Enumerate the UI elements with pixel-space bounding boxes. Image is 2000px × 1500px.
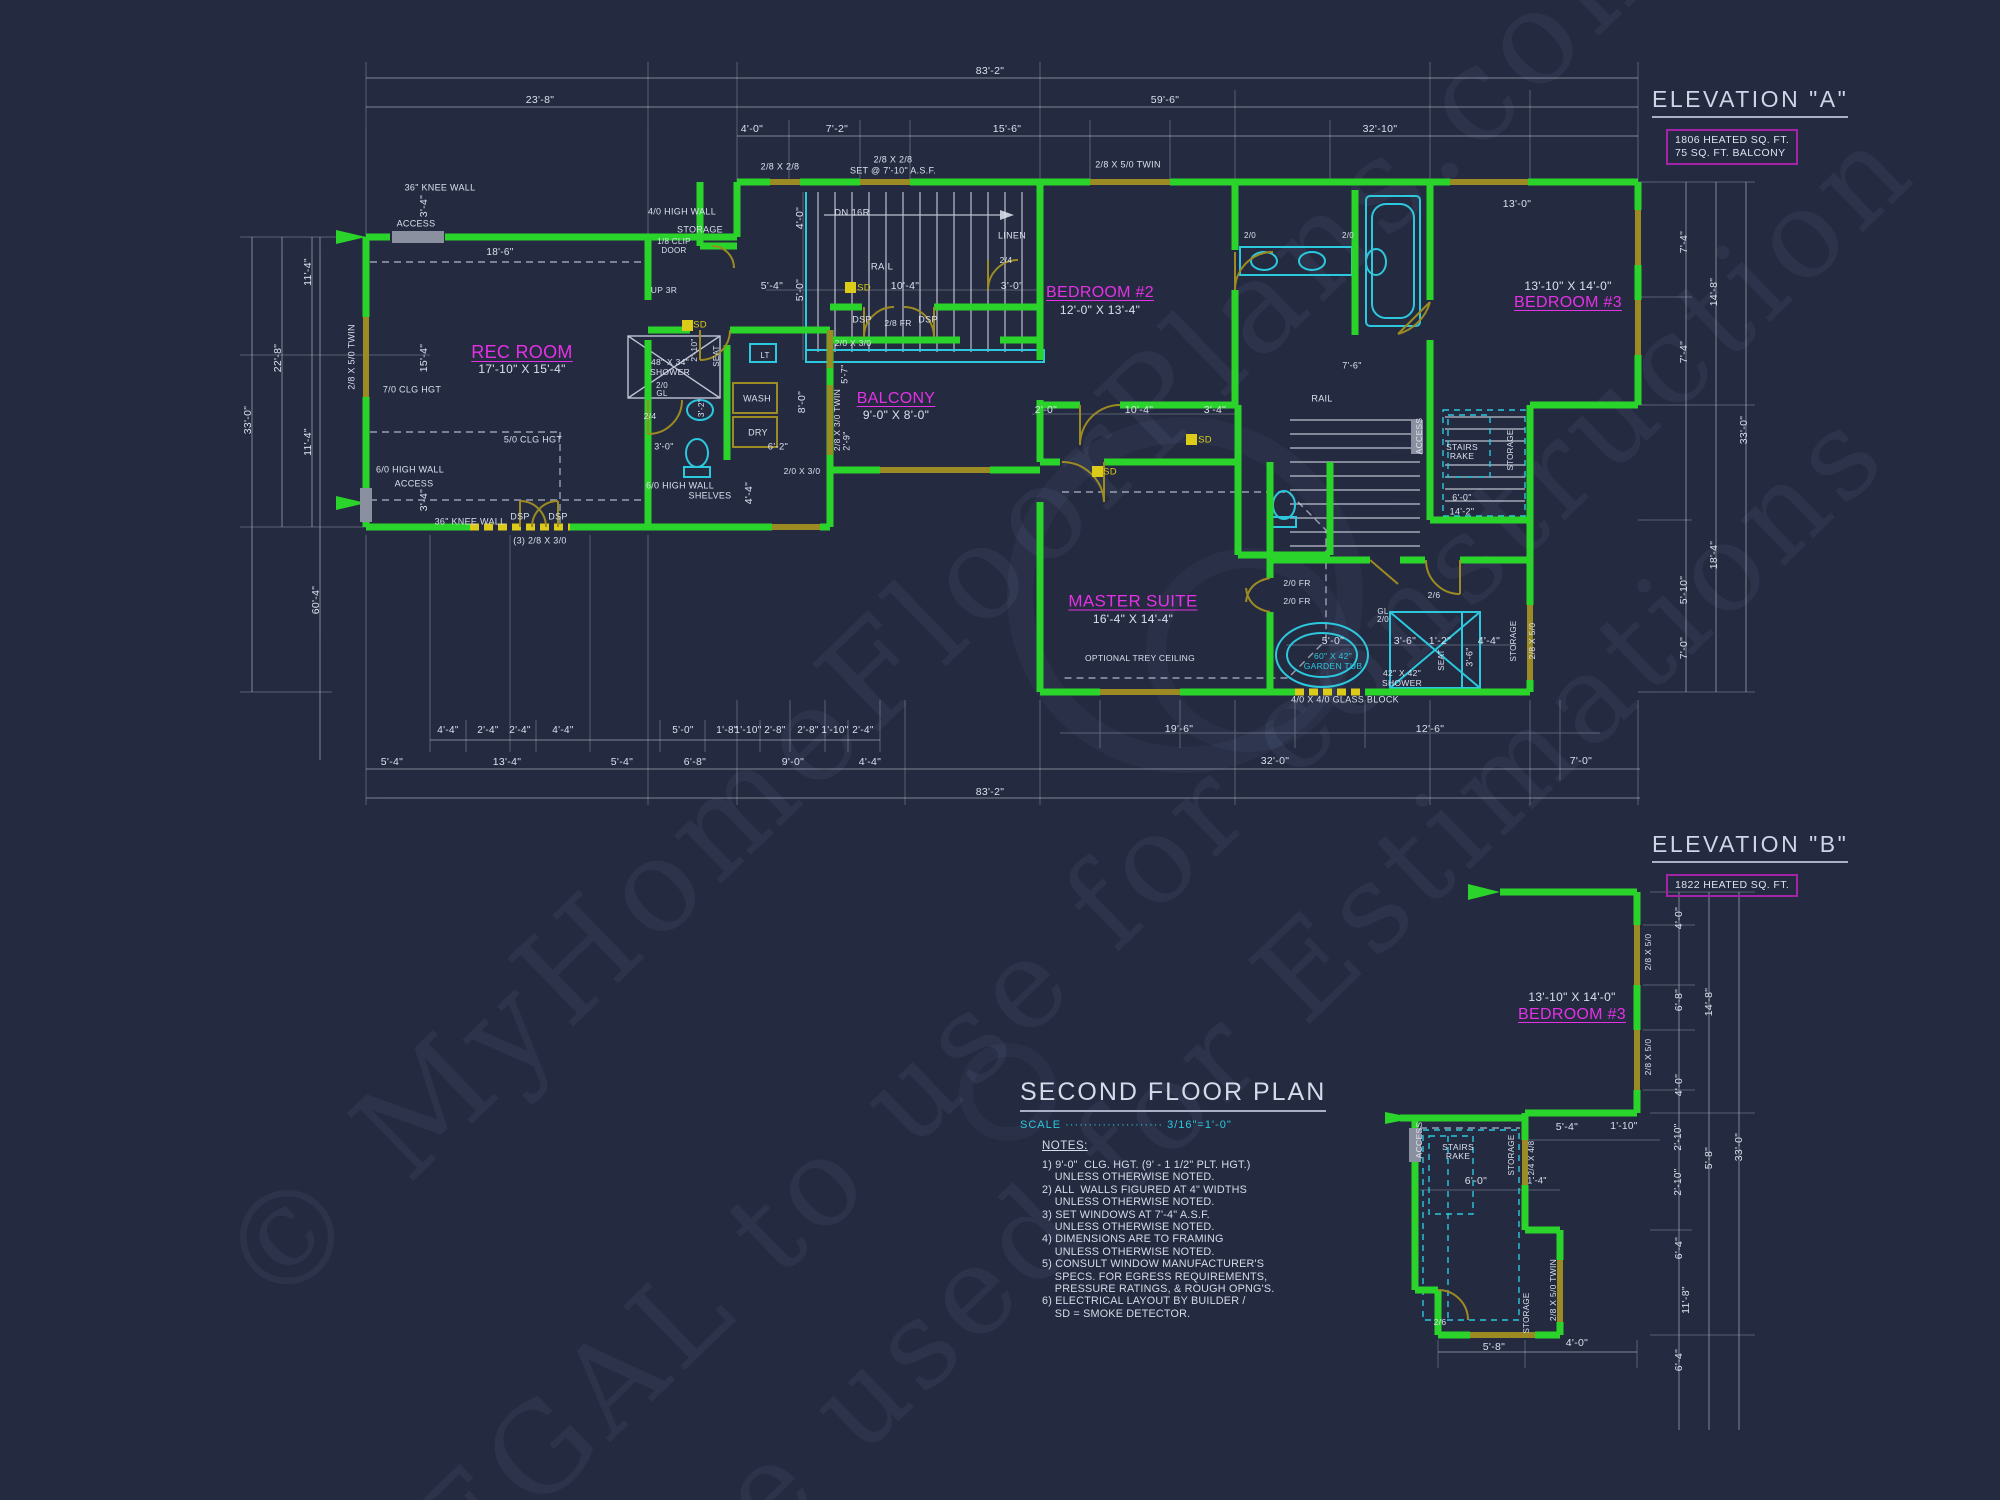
plan-label: 36" KNEE WALL [435,518,506,527]
room-label-bedroom-3: BEDROOM #3 [1514,295,1622,311]
plan-label: (3) 2/8 X 3/0 [513,537,566,546]
plan-label: 48" X 34" [651,358,689,367]
plan-label: 5'-8" [1483,1342,1505,1353]
plan-label: 14'-2" [1450,508,1475,517]
plan-label: 2/0 [1244,232,1256,240]
plan-label: 6'-2" [768,442,788,452]
plan-label: SEAT [1438,649,1446,671]
plan-label: 14'-8" [1704,988,1715,1017]
elevation-a-sqft-box: 1806 HEATED SQ. FT. 75 SQ. FT. BALCONY [1666,129,1798,165]
note-line: UNLESS OTHERWISE NOTED. [1042,1246,1274,1258]
plan-label: 6'-4" [1674,1237,1685,1259]
plan-label: 3'-0" [1001,281,1023,292]
plan-label: 18'-4" [1709,541,1720,570]
plan-label: SD [1198,435,1212,445]
plan-label: 2/0 FR [1283,579,1310,588]
plan-label: 17'-10" X 15'-4" [478,363,565,375]
blueprint-page: © MyHomeFloorPlans.com ILLEGAL to use fo… [0,0,2000,1500]
plan-label: 3'-6" [1466,647,1475,666]
plan-label: RAKE [1450,452,1474,461]
plan-label: SEAT [713,345,721,367]
plan-label: 2/4 [644,412,657,421]
plan-title-block: SECOND FLOOR PLAN SCALE ················… [1020,1078,1326,1131]
note-line: UNLESS OTHERWISE NOTED. [1042,1196,1274,1208]
plan-label: RAKE [1446,1152,1470,1161]
plan-label: 5'-4" [611,757,633,768]
plan-label: 32'-10" [1363,124,1398,135]
plan-label: 5'-0" [795,279,806,301]
plan-label: 3'-6" [1394,636,1416,647]
notes-block: NOTES: 1) 9'-0" CLG. HGT. (9' - 1 1/2" P… [1042,1140,1274,1320]
plan-label: 2/4 X 4/8 [1528,1141,1536,1176]
elevation-b-sqft-box: 1822 HEATED SQ. FT. [1666,874,1798,897]
plan-label: 4'-4" [859,757,881,768]
plan-title: SECOND FLOOR PLAN [1020,1078,1326,1112]
plan-label: SHOWER [1382,679,1422,688]
plan-label: 1'-10" [734,726,761,736]
plan-label: 33'-0" [243,406,254,435]
plan-label: 7'-4" [1679,341,1690,363]
plan-label: 5'-4" [1556,1122,1578,1133]
plan-label: ACCESS [397,220,436,229]
plan-label: 5'-0" [672,726,693,736]
plan-label: 14'-8" [1709,278,1720,307]
plan-label: 4'-4" [1478,636,1500,647]
plan-scale: SCALE ····················· 3/16"=1'-0" [1020,1119,1326,1131]
plan-label: 5'-4" [761,281,783,292]
plan-label: 60" X 42" [1314,652,1352,661]
plan-label: 7'-0" [1570,756,1592,767]
plan-label: 4'-4" [437,726,458,736]
plan-label: 4'-4" [552,726,573,736]
plan-label: 8'-0" [797,391,808,413]
plan-label: 2/8 X 5/0 [1528,623,1537,660]
note-line: 6) ELECTRICAL LAYOUT BY BUILDER / [1042,1295,1274,1307]
annotation-layer: 83'-2"23'-8"59'-6"4'-0"7'-2"15'-6"32'-10… [0,0,2000,1500]
plan-label: 11'-4" [303,428,314,456]
plan-label: 4/0 HIGH WALL [648,208,716,217]
plan-label: 2/0 FR [1283,597,1310,606]
plan-label: 2/8 X 5/0 [1644,934,1653,971]
plan-label: 11'-8" [1681,1286,1692,1314]
plan-label: 10'-4" [1125,405,1154,416]
plan-label: 4'-0" [795,207,806,229]
plan-label: 2'-8" [797,726,818,736]
note-line: PRESSURE RATINGS, & ROUGH OPNG'S. [1042,1283,1274,1295]
plan-label: ACCESS [395,480,434,489]
elevation-a-title: ELEVATION "A" [1652,86,1848,118]
plan-label: 7'-6" [1342,362,1361,371]
plan-label: 9'-0" [782,757,804,768]
plan-label: 5'-10" [1679,576,1690,605]
plan-label: 15'-4" [419,344,430,373]
plan-label: 2/0 X 3/0 [784,467,821,476]
plan-label: ACCESS [1415,1122,1424,1159]
notes-heading: NOTES: [1042,1140,1274,1152]
plan-label: DSP [510,513,529,522]
plan-label: 33'-0" [1734,1133,1745,1162]
plan-label: 16'-4" X 14'-4" [1093,613,1173,625]
note-line: 2) ALL WALLS FIGURED AT 4" WIDTHS [1042,1184,1274,1196]
elevation-a-heated-sqft: 1806 HEATED SQ. FT. [1675,134,1789,147]
plan-label: 2/4 [1000,256,1013,265]
plan-label: 6'-8" [1674,989,1685,1011]
plan-label: 13'-10" X 14'-0" [1528,991,1615,1003]
plan-label: 7'-4" [1679,231,1690,253]
plan-label: DN 16R [834,208,870,218]
plan-label: 5/0 CLG HGT [504,436,562,445]
plan-label: 5'-7" [841,364,850,383]
plan-label: 6'-0" [1465,1176,1487,1187]
plan-label: 13'-10" X 14'-0" [1524,280,1611,292]
note-line: UNLESS OTHERWISE NOTED. [1042,1171,1274,1183]
plan-label: 3'-2" [697,399,706,417]
plan-label: 4/0 X 4/0 GLASS BLOCK [1291,696,1399,705]
plan-label: 2/8 X 5/0 [1644,1039,1653,1076]
plan-label: 6/0 HIGH WALL [376,466,444,475]
plan-label: 6'-4" [1674,1349,1685,1371]
note-line: 4) DIMENSIONS ARE TO FRAMING [1042,1233,1274,1245]
note-line: UNLESS OTHERWISE NOTED. [1042,1221,1274,1233]
plan-label: 1'-4" [1527,1177,1546,1186]
plan-label: 2'-9" [843,431,852,450]
plan-label: DSP [918,316,937,325]
plan-label: 2/8 X 2/8 [761,163,800,172]
plan-label: 10'-4" [891,281,920,292]
plan-label: 4'-0" [1674,907,1685,929]
plan-label: 9'-0" X 8'-0" [863,409,929,421]
plan-label: 1'-10" [821,726,848,736]
plan-label: GARDEN TUB [1304,662,1363,671]
note-line: SPECS. FOR EGRESS REQUIREMENTS, [1042,1271,1274,1283]
note-line: 5) CONSULT WINDOW MANUFACTURER'S [1042,1258,1274,1270]
plan-label: 1/8 CLIP [657,238,691,246]
notes-list: 1) 9'-0" CLG. HGT. (9' - 1 1/2" PLT. HGT… [1042,1159,1274,1320]
plan-label: 1'-2" [1429,636,1451,647]
plan-label: 2/0 [1342,232,1354,240]
plan-label: 3'-4" [419,489,430,511]
plan-label: 2'-4" [477,726,498,736]
plan-label: GL [656,390,667,398]
plan-label: 6'-8" [684,757,706,768]
plan-label: LINEN [998,232,1026,241]
plan-label: 2'-10" [690,338,699,361]
plan-label: 83'-2" [976,66,1005,77]
plan-label: 2/8 X 5/0 TWIN [1095,161,1161,170]
plan-label: 2'-8" [764,726,785,736]
plan-label: 2/0 [1377,616,1389,624]
plan-label: LT [760,352,769,360]
plan-label: 6'-0" [1452,494,1471,503]
plan-label: 4'-0" [1674,1074,1685,1096]
plan-label: 5'-8" [1704,1147,1715,1169]
plan-label: 1'-10" [1610,1122,1637,1132]
plan-label: DSP [548,513,567,522]
plan-label: STORAGE [1523,1292,1531,1333]
plan-label: 3'-4" [1204,405,1226,416]
plan-label: 19'-6" [1165,724,1194,735]
plan-label: ACCESS [1415,418,1424,455]
plan-label: 83'-2" [976,787,1005,798]
plan-label: 2'-10" [1674,1168,1684,1195]
plan-label: 60'-4" [311,586,322,615]
plan-label: RAIL [1311,395,1332,404]
plan-label: 6/0 HIGH WALL [646,482,714,491]
plan-label: STORAGE [1507,429,1515,470]
plan-label: 2'-4" [852,726,873,736]
elevation-a-block: ELEVATION "A" 1806 HEATED SQ. FT. 75 SQ.… [1652,86,1848,165]
plan-label: 3'-0" [654,443,673,452]
plan-label: 12'-6" [1416,724,1445,735]
plan-label: 2/8 X 2/8 [874,156,913,165]
plan-label: 33'-0" [1739,416,1750,445]
plan-label: DSP [852,316,871,325]
plan-label: SHOWER [650,368,690,377]
room-label-balcony: BALCONY [857,391,936,407]
plan-label: STORAGE [1510,620,1518,661]
plan-label: OPTIONAL TREY CEILING [1085,654,1195,663]
note-line: 3) SET WINDOWS AT 7'-4" A.S.F. [1042,1209,1274,1221]
plan-label: 23'-8" [526,95,555,106]
plan-label: 2'-4" [509,726,530,736]
plan-label: SET @ 7'-10" A.S.F. [850,167,936,176]
plan-label: DRY [748,429,768,438]
plan-label: 2/8 X 5/0 TWIN [348,324,357,390]
note-line: SD = SMOKE DETECTOR. [1042,1308,1274,1320]
plan-label: 7'-2" [826,124,848,135]
plan-label: DOOR [661,247,686,255]
plan-label: 2/6 [1434,1318,1447,1327]
plan-label: 11'-4" [303,258,314,286]
plan-label: 2/0 X 3/0 [835,339,872,348]
note-line: 1) 9'-0" CLG. HGT. (9' - 1 1/2" PLT. HGT… [1042,1159,1274,1171]
elevation-b-heated-sqft: 1822 HEATED SQ. FT. [1675,879,1789,892]
plan-label: 18'-6" [486,248,513,258]
plan-label: 42" X 42" [1383,669,1421,678]
plan-label: SD [693,320,707,330]
plan-label: UP 3R [651,286,677,295]
room-label-bedroom-2: BEDROOM #2 [1046,285,1154,301]
plan-label: 32'-0" [1261,756,1290,767]
plan-label: 13'-0" [1503,199,1532,210]
plan-label: 13'-4" [493,757,522,768]
plan-label: SD [857,283,871,293]
plan-label: 2'-0" [1035,405,1057,416]
elevation-b-title: ELEVATION "B" [1652,831,1848,863]
plan-label: 15'-6" [993,124,1022,135]
plan-label: 5'-4" [381,757,403,768]
plan-label: 4'-0" [1566,1338,1588,1349]
room-label-master-suite: MASTER SUITE [1068,593,1197,610]
plan-label: SD [1103,467,1117,477]
plan-label: 22'-8" [273,344,284,373]
elevation-b-block: ELEVATION "B" 1822 HEATED SQ. FT. [1652,831,1848,897]
plan-label: RAIL [871,262,893,272]
plan-label: 2/8 X 5/0 TWIN [1549,1259,1558,1321]
plan-label: WASH [743,395,771,404]
plan-label: 36" KNEE WALL [405,184,476,193]
plan-label: 59'-6" [1151,95,1180,106]
plan-label: 12'-0" X 13'-4" [1060,304,1140,316]
room-label-rec-room: REC ROOM [471,343,572,361]
plan-label: 4'-4" [744,482,755,504]
elevation-a-balcony-sqft: 75 SQ. FT. BALCONY [1675,147,1789,160]
plan-label: 2/6 [1428,591,1441,600]
plan-label: SHELVES [689,492,732,501]
plan-label: STORAGE [1508,1134,1516,1175]
plan-label: STORAGE [677,226,723,235]
plan-label: 3'-4" [419,195,430,217]
plan-label: 4'-0" [741,124,763,135]
plan-label: 2/8 X 3/0 TWIN [833,389,842,451]
plan-label: 5'-0" [1322,636,1344,647]
room-label-bedroom-3-alt: BEDROOM #3 [1518,1007,1626,1023]
plan-label: 7/0 CLG HGT [383,386,441,395]
plan-label: 2/8 FR [884,319,911,328]
plan-label: 7'-0" [1679,637,1690,659]
plan-label: 2'-10" [1674,1123,1684,1150]
